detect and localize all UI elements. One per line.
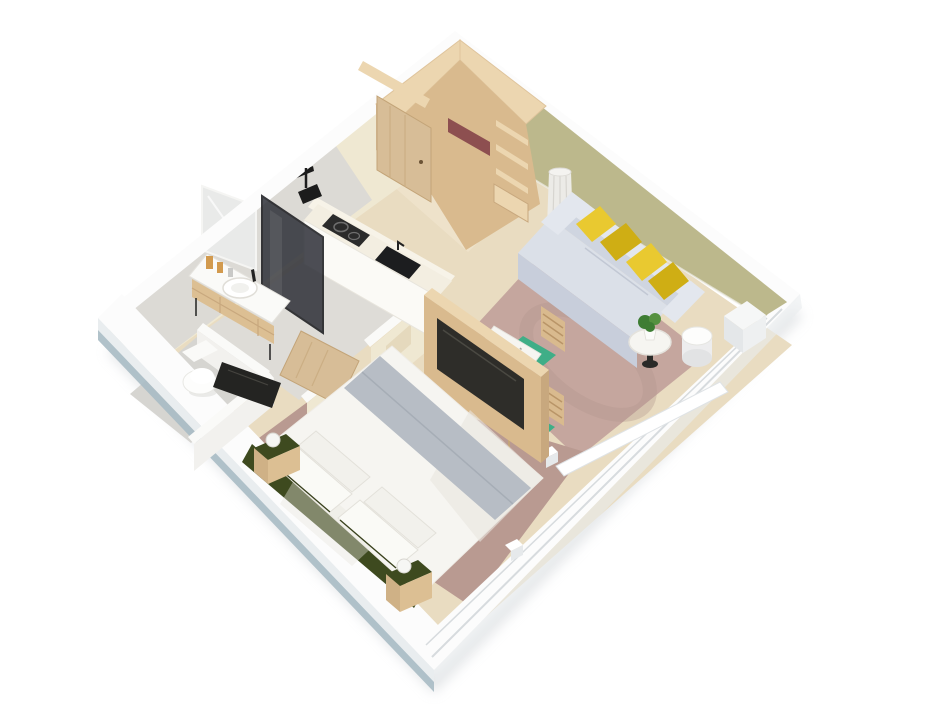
candle [206,256,213,269]
vase-top [549,168,571,176]
ball-lamp [397,559,411,573]
drum-side-table [682,327,712,367]
door-handle [419,160,423,164]
partition-end [541,370,549,463]
sink-basin [231,283,249,293]
table-base [642,360,658,368]
drum-top [682,327,712,345]
floorplan-canvas [0,0,940,705]
apartment-floorplan-render [0,0,940,705]
plant-foliage [645,322,655,332]
glass-reflection [270,210,282,300]
drum-bottom [682,349,712,367]
candle [217,262,223,273]
toilet-seat [190,368,214,384]
ball-lamp [266,433,280,447]
cosmetic-bottle [228,268,233,277]
